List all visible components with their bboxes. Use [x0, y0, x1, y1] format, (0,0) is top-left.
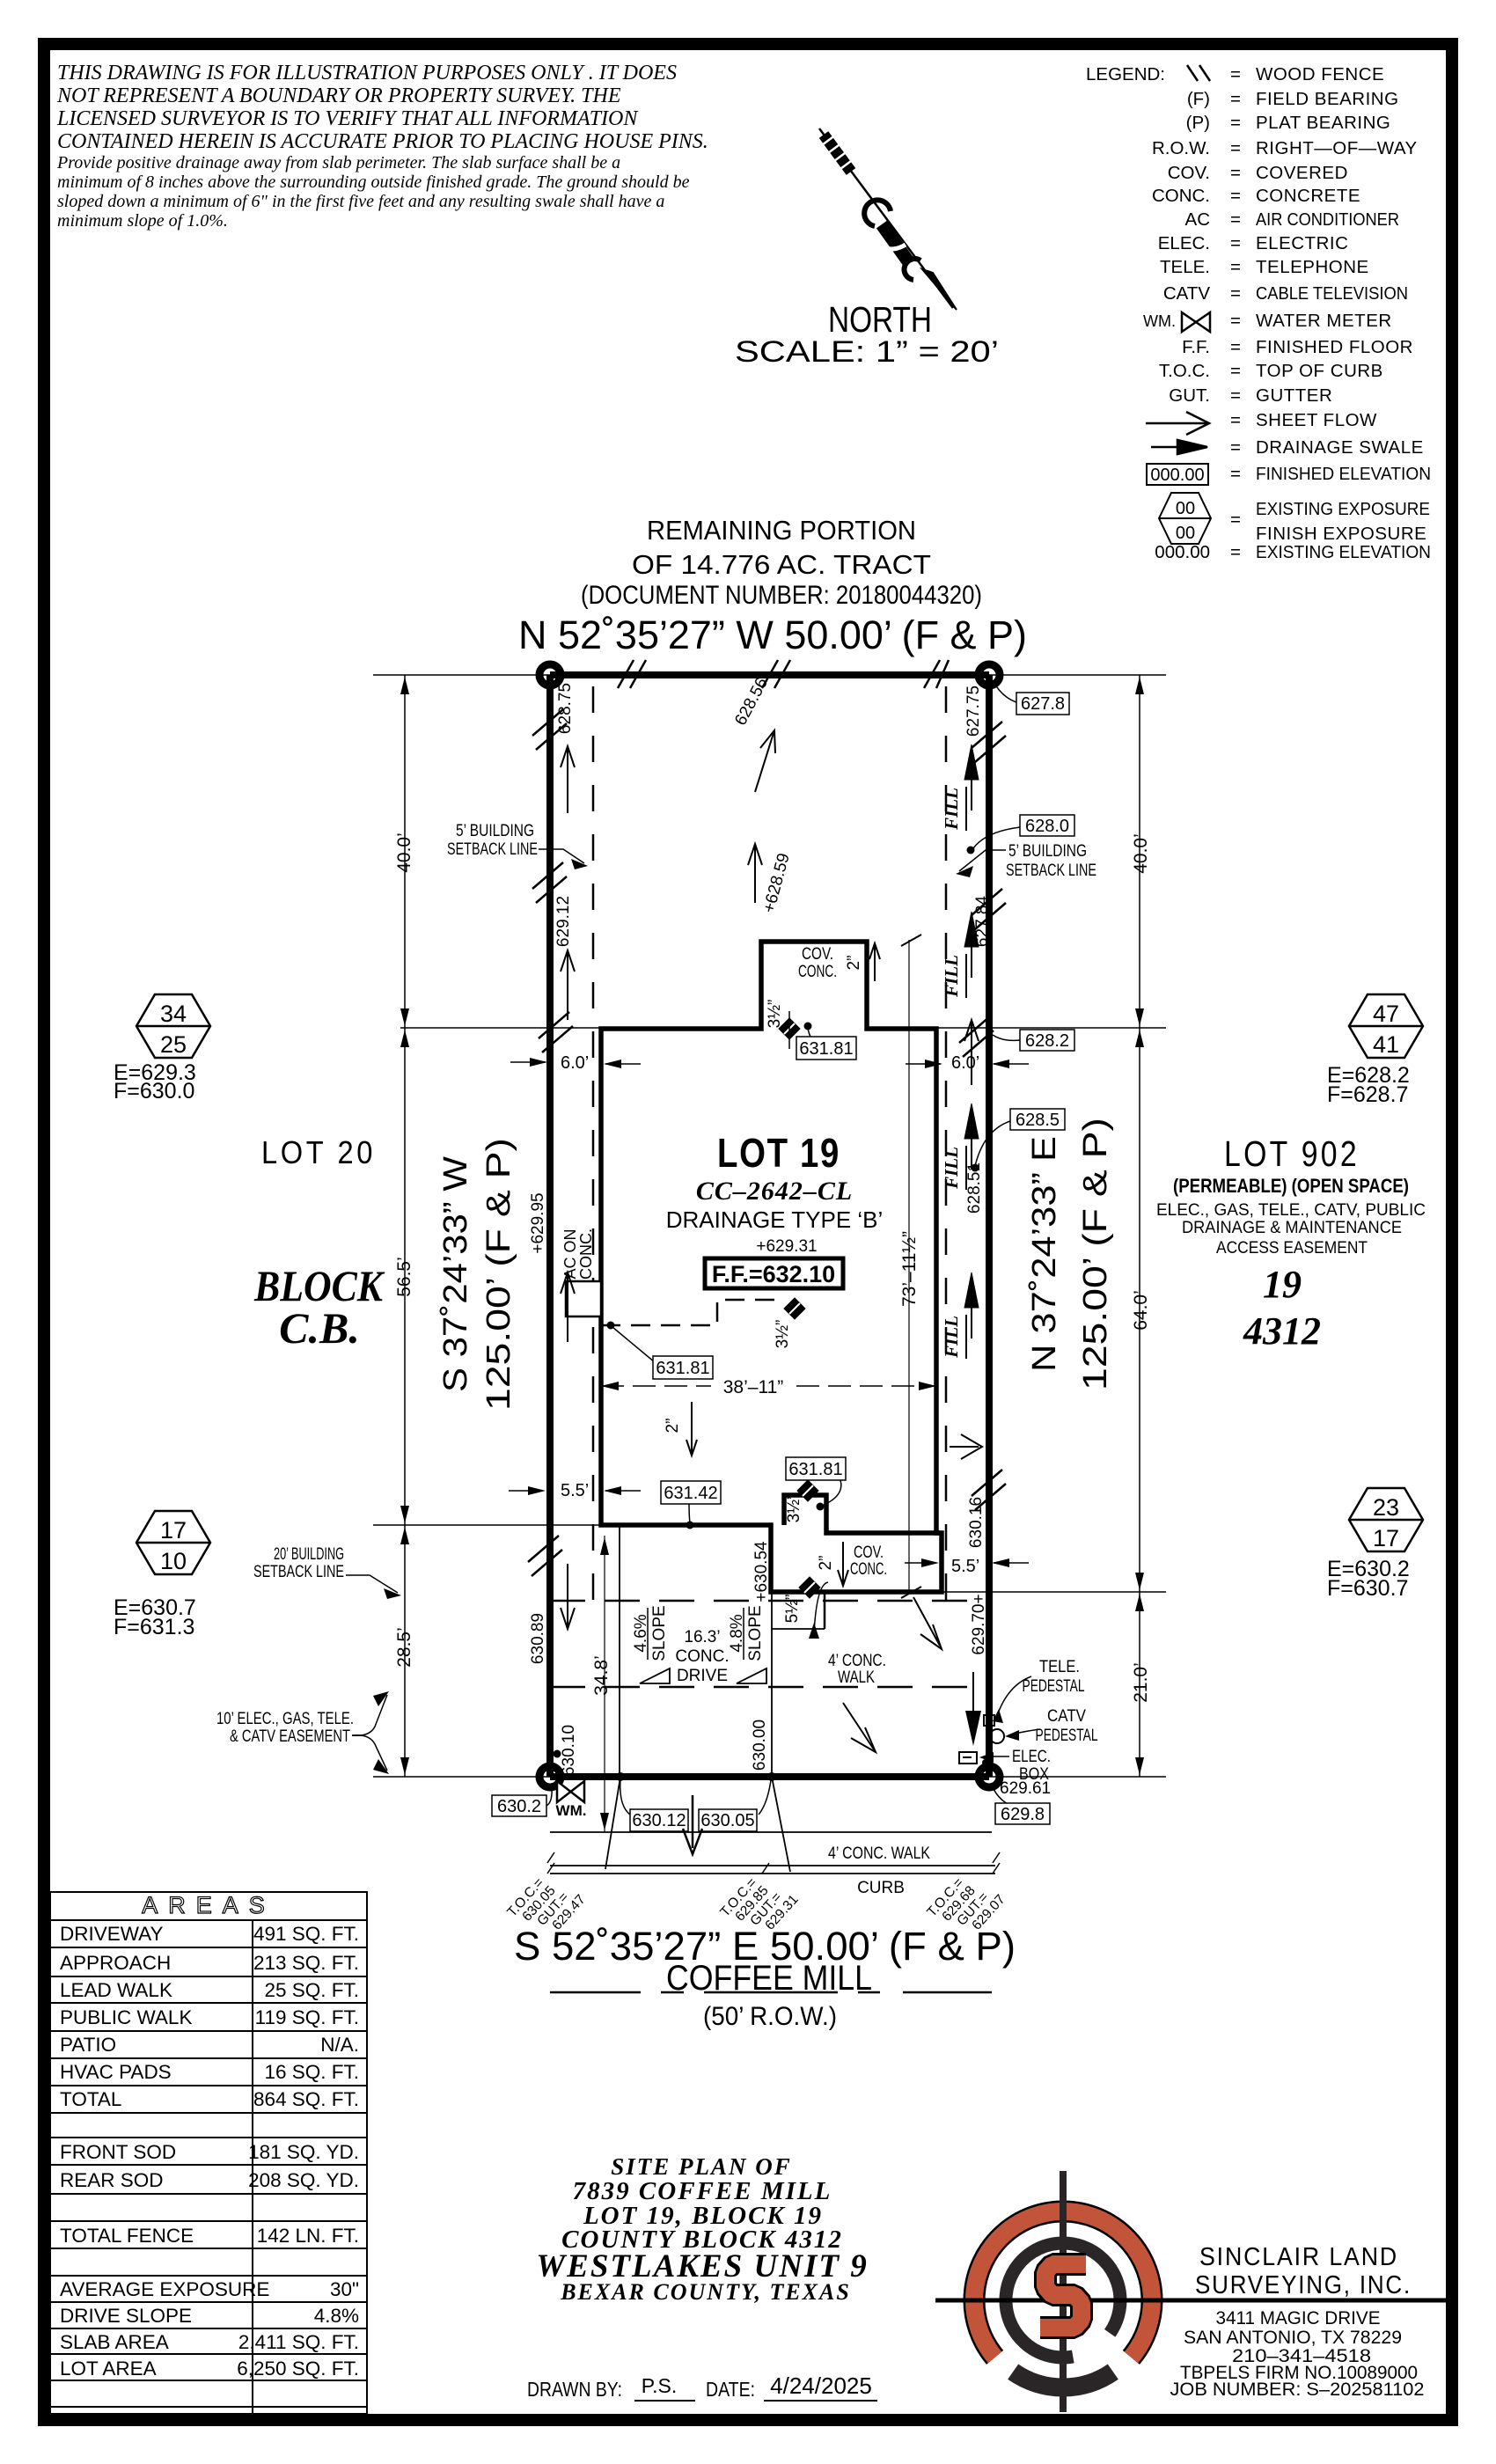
svg-text:LEAD WALK: LEAD WALK	[60, 1979, 172, 2001]
svg-text:& CATV EASEMENT: & CATV EASEMENT	[230, 1727, 350, 1746]
svg-text:TOP OF CURB: TOP OF CURB	[1256, 361, 1383, 381]
svg-text:N 52˚35’27” W 50.00’ (F &: N 52˚35’27” W 50.00’ (F & P)	[518, 612, 1027, 657]
svg-text:28.5’: 28.5’	[394, 1627, 414, 1668]
svg-text:34.8’: 34.8’	[591, 1655, 612, 1696]
svg-text:LOT 19: LOT 19	[717, 1130, 840, 1176]
svg-text:5½”: 5½”	[783, 1595, 802, 1624]
svg-text:000.00: 000.00	[1150, 466, 1204, 485]
svg-text:627.75: 627.75	[964, 686, 983, 737]
svg-text:40.0’: 40.0’	[1131, 833, 1151, 874]
svg-text:CONC.: CONC.	[1152, 186, 1210, 206]
svg-text:minimum slope of 1.0%.: minimum slope of 1.0%.	[57, 211, 228, 231]
svg-text:ELECTRIC: ELECTRIC	[1256, 233, 1348, 253]
svg-text:JOB NUMBER: S–202581102: JOB NUMBER: S–202581102	[1170, 2380, 1425, 2400]
svg-text:=: =	[1230, 233, 1241, 253]
svg-text:4’ CONC.: 4’ CONC.	[828, 1652, 886, 1670]
svg-text:2”: 2”	[845, 956, 863, 971]
svg-text:LOT 20: LOT 20	[261, 1134, 376, 1170]
svg-text:ELEC.: ELEC.	[1158, 233, 1210, 253]
svg-text:40.0’: 40.0’	[394, 832, 414, 873]
svg-text:CONC.: CONC.	[850, 1560, 887, 1579]
svg-text:CONTAINED HEREIN IS ACCURATE P: CONTAINED HEREIN IS ACCURATE PRIOR TO PL…	[57, 130, 708, 153]
svg-text:CABLE TELEVISION: CABLE TELEVISION	[1256, 283, 1408, 304]
svg-text:17: 17	[160, 1517, 187, 1544]
svg-text:=: =	[1230, 542, 1241, 562]
svg-text:SAN ANTONIO, TX 78229: SAN ANTONIO, TX 78229	[1184, 2328, 1402, 2348]
svg-text:630.12: 630.12	[632, 1811, 686, 1830]
svg-text:4312: 4312	[1243, 1309, 1321, 1353]
svg-text:125.00’ (F & P): 125.00’ (F & P)	[480, 1138, 517, 1411]
svg-text:17: 17	[1373, 1525, 1399, 1551]
svg-text:(DOCUMENT NUMBER: 2018004432: (DOCUMENT NUMBER: 20180044320)	[581, 581, 982, 610]
svg-text:COV.: COV.	[1168, 163, 1210, 183]
svg-text:4.8%: 4.8%	[314, 2305, 359, 2327]
svg-text:EXISTING ELEVATION: EXISTING ELEVATION	[1256, 542, 1431, 562]
svg-text:DRIVE: DRIVE	[677, 1667, 728, 1685]
svg-text:628.2: 628.2	[1025, 1031, 1069, 1051]
svg-text:APPROACH: APPROACH	[60, 1952, 171, 1974]
svg-text:(P): (P)	[1186, 113, 1210, 133]
svg-text:=: =	[1230, 283, 1241, 304]
svg-text:25: 25	[160, 1031, 187, 1058]
svg-text:142 LN. FT.: 142 LN. FT.	[257, 2225, 359, 2247]
svg-text:F=631.3: F=631.3	[114, 1615, 194, 1639]
svg-text:6.0’: 6.0’	[951, 1053, 979, 1073]
svg-text:=: =	[1230, 209, 1241, 230]
svg-text:FINISH EXPOSURE: FINISH EXPOSURE	[1256, 524, 1426, 544]
svg-text:F=630.0: F=630.0	[114, 1079, 194, 1104]
svg-text:5.5’: 5.5’	[951, 1557, 979, 1576]
svg-text:630.2: 630.2	[497, 1797, 541, 1816]
svg-text:864 SQ. FT.: 864 SQ. FT.	[253, 2088, 359, 2110]
svg-text:NOT REPRESENT A BOUNDARY OR PR: NOT REPRESENT A BOUNDARY OR PROPERTY SUR…	[56, 84, 621, 107]
svg-text:ACCESS EASEMENT: ACCESS EASEMENT	[1216, 1239, 1368, 1258]
svg-text:CC–2642–CL: CC–2642–CL	[696, 1177, 853, 1206]
svg-text:TOTAL: TOTAL	[60, 2088, 121, 2110]
svg-text:SLOPE: SLOPE	[650, 1605, 669, 1661]
svg-text:PUBLIC WALK: PUBLIC WALK	[60, 2006, 192, 2028]
svg-text:631.81: 631.81	[788, 1460, 842, 1479]
svg-text:TOTAL FENCE: TOTAL FENCE	[60, 2225, 194, 2247]
svg-text:T.O.C.: T.O.C.	[1159, 361, 1210, 381]
svg-text:F=630.7: F=630.7	[1327, 1576, 1408, 1601]
svg-text:FINISHED ELEVATION: FINISHED ELEVATION	[1256, 464, 1431, 484]
svg-text:COV.: COV.	[854, 1544, 884, 1562]
svg-text:FILL: FILL	[941, 1147, 962, 1190]
svg-text:=: =	[1230, 186, 1241, 206]
svg-text:REMAINING PORTION: REMAINING PORTION	[647, 515, 916, 546]
svg-text:+630.54: +630.54	[752, 1541, 771, 1602]
svg-text:FRONT SOD: FRONT SOD	[60, 2141, 176, 2163]
svg-text:CONC.: CONC.	[798, 963, 837, 981]
svg-text:213 SQ. FT.: 213 SQ. FT.	[253, 1952, 359, 1974]
svg-text:=: =	[1230, 361, 1241, 381]
svg-text:AREAS: AREAS	[142, 1892, 275, 1918]
svg-text:00: 00	[1176, 499, 1195, 518]
svg-text:GUTTER: GUTTER	[1256, 385, 1332, 406]
svg-text:6.0’: 6.0’	[561, 1053, 589, 1073]
svg-text:AC: AC	[1185, 209, 1211, 230]
svg-text:19: 19	[1263, 1263, 1302, 1306]
svg-text:+629.95: +629.95	[529, 1192, 547, 1253]
svg-text:THIS DRAWING IS FOR ILLUSTRATI: THIS DRAWING IS FOR ILLUSTRATION PURPOSE…	[57, 62, 677, 84]
svg-text:23: 23	[1373, 1494, 1399, 1521]
svg-text:631.81: 631.81	[799, 1039, 853, 1059]
svg-text:630.89: 630.89	[529, 1613, 547, 1664]
svg-text:4’ CONC. WALK: 4’ CONC. WALK	[828, 1844, 930, 1863]
svg-text:629.70+: 629.70+	[970, 1594, 988, 1654]
svg-text:64.0’: 64.0’	[1131, 1290, 1151, 1331]
svg-text:=: =	[1230, 64, 1241, 84]
svg-text:10: 10	[160, 1548, 187, 1574]
svg-text:PEDESTAL: PEDESTAL	[1036, 1727, 1098, 1745]
svg-text:WALK: WALK	[838, 1668, 875, 1687]
svg-text:FILL: FILL	[941, 955, 962, 998]
svg-text:LOT 902: LOT 902	[1224, 1133, 1360, 1174]
svg-text:TELE.: TELE.	[1039, 1658, 1080, 1676]
svg-text:LEGEND:: LEGEND:	[1086, 64, 1165, 84]
svg-text:WOOD FENCE: WOOD FENCE	[1256, 64, 1384, 84]
svg-text:R.O.W.: R.O.W.	[1152, 138, 1210, 158]
svg-text:=: =	[1230, 385, 1241, 406]
svg-text:(F): (F)	[1187, 89, 1210, 109]
svg-text:4/24/2025: 4/24/2025	[770, 2372, 872, 2399]
svg-text:ELEC.: ELEC.	[1012, 1748, 1051, 1766]
svg-text:F.F.: F.F.	[1182, 337, 1210, 357]
svg-text:181 SQ. YD.: 181 SQ. YD.	[248, 2141, 359, 2163]
svg-text:2,411 SQ. FT.: 2,411 SQ. FT.	[238, 2331, 359, 2353]
svg-text:000.00: 000.00	[1155, 542, 1210, 562]
svg-text:119 SQ. FT.: 119 SQ. FT.	[255, 2006, 359, 2028]
svg-text:2”: 2”	[817, 1556, 835, 1571]
svg-text:DRAWN BY:: DRAWN BY:	[527, 2378, 622, 2401]
svg-text:SURVEYING, INC.: SURVEYING, INC.	[1195, 2271, 1412, 2299]
svg-text:56.5’: 56.5’	[394, 1257, 414, 1297]
svg-text:P.S.: P.S.	[642, 2374, 678, 2397]
svg-text:3½”: 3½”	[766, 1000, 784, 1029]
svg-text:5.5’: 5.5’	[561, 1481, 589, 1500]
svg-text:EXISTING EXPOSURE: EXISTING EXPOSURE	[1256, 499, 1430, 519]
svg-text:=: =	[1230, 163, 1241, 183]
svg-text:CATV: CATV	[1047, 1707, 1086, 1726]
svg-text:SETBACK LINE: SETBACK LINE	[1006, 862, 1096, 880]
svg-text:SLOPE: SLOPE	[746, 1605, 765, 1661]
svg-text:21.0’: 21.0’	[1131, 1662, 1151, 1703]
svg-text:DRAINAGE TYPE ‘B’: DRAINAGE TYPE ‘B’	[666, 1206, 884, 1233]
svg-text:minimum of 8 inches above the: minimum of 8 inches above the surroundin…	[57, 172, 690, 192]
svg-text:FILL: FILL	[941, 788, 962, 831]
svg-text:=: =	[1230, 257, 1241, 277]
svg-text:WM.: WM.	[1143, 312, 1176, 330]
svg-text:LOT AREA: LOT AREA	[60, 2358, 157, 2380]
svg-text:(50’ R.O.W.): (50’ R.O.W.)	[703, 2002, 837, 2031]
svg-text:627.8: 627.8	[1021, 694, 1065, 714]
svg-text:630.10: 630.10	[560, 1725, 578, 1776]
svg-text:S 37˚24’33” W: S 37˚24’33” W	[437, 1156, 474, 1392]
svg-text:=: =	[1230, 311, 1241, 331]
svg-text:N 37˚24’33” E: N 37˚24’33” E	[1026, 1136, 1063, 1372]
svg-text:628.75: 628.75	[556, 683, 575, 734]
svg-text:HVAC PADS: HVAC PADS	[60, 2061, 172, 2083]
svg-text:630.00: 630.00	[751, 1720, 769, 1771]
svg-text:LICENSED SURVEYOR IS TO VERIFY: LICENSED SURVEYOR IS TO VERIFY THAT ALL …	[56, 107, 639, 130]
svg-text:=: =	[1230, 337, 1241, 357]
svg-text:628.51: 628.51	[965, 1162, 984, 1214]
svg-text:=: =	[1230, 138, 1241, 158]
svg-text:OF 14.776 AC. TRACT: OF 14.776 AC. TRACT	[632, 549, 931, 580]
svg-text:NORTH: NORTH	[828, 299, 932, 340]
svg-text:AIR CONDITIONER: AIR CONDITIONER	[1256, 209, 1399, 230]
svg-text:628.5: 628.5	[1016, 1111, 1060, 1130]
svg-text:=: =	[1230, 510, 1241, 530]
svg-text:BEXAR COUNTY, TEXAS: BEXAR COUNTY, TEXAS	[560, 2279, 851, 2305]
svg-text:2”: 2”	[664, 1419, 682, 1434]
svg-text:SINCLAIR LAND: SINCLAIR LAND	[1199, 2243, 1398, 2271]
svg-text:=: =	[1230, 113, 1241, 133]
svg-text:DRIVE SLOPE: DRIVE SLOPE	[60, 2305, 192, 2327]
svg-text:16 SQ. FT.: 16 SQ. FT.	[264, 2061, 359, 2083]
svg-text:TELE.: TELE.	[1160, 257, 1210, 277]
svg-text:AC ON: AC ON	[561, 1228, 579, 1279]
svg-text:DRAINAGE SWALE: DRAINAGE SWALE	[1256, 437, 1424, 458]
svg-text:TELEPHONE: TELEPHONE	[1256, 257, 1369, 277]
svg-text:47: 47	[1373, 1001, 1399, 1027]
svg-text:10’ ELEC., GAS, TELE.: 10’ ELEC., GAS, TELE.	[216, 1710, 354, 1728]
svg-text:COV.: COV.	[802, 945, 833, 964]
svg-text:3½”: 3½”	[774, 1320, 792, 1349]
svg-text:+629.31: +629.31	[756, 1237, 817, 1256]
svg-text:CATV: CATV	[1163, 283, 1210, 304]
svg-text:30": 30"	[330, 2278, 359, 2300]
svg-text:REAR SOD: REAR SOD	[60, 2169, 164, 2191]
svg-text:6,250 SQ. FT.: 6,250 SQ. FT.	[237, 2358, 359, 2380]
svg-text:sloped down a minimum of 6" in: sloped down a minimum of 6" in the first…	[57, 192, 664, 211]
svg-text:SLAB AREA: SLAB AREA	[60, 2331, 169, 2353]
svg-text:PEDESTAL: PEDESTAL	[1023, 1677, 1085, 1696]
svg-text:5’ BUILDING: 5’ BUILDING	[1008, 842, 1087, 861]
svg-text:FIELD BEARING: FIELD BEARING	[1256, 89, 1399, 109]
svg-text:SETBACK LINE: SETBACK LINE	[447, 840, 538, 859]
svg-text:20’ BUILDING: 20’ BUILDING	[274, 1545, 344, 1564]
svg-text:=: =	[1230, 410, 1241, 430]
svg-text:=: =	[1230, 437, 1241, 458]
svg-text:3½”: 3½”	[785, 1494, 803, 1523]
svg-text:Provide positive drainage away: Provide positive drainage away from slab…	[56, 153, 620, 172]
svg-text:+628.59: +628.59	[760, 851, 794, 914]
svg-text:73’–11½”: 73’–11½”	[899, 1231, 920, 1307]
svg-text:628.56: 628.56	[731, 675, 772, 729]
svg-text:RIGHT—OF—WAY: RIGHT—OF—WAY	[1256, 138, 1418, 158]
svg-text:=: =	[1230, 89, 1241, 109]
svg-text:FINISHED FLOOR: FINISHED FLOOR	[1256, 337, 1413, 357]
svg-text:(PERMEABLE) (OPEN SPACE): (PERMEABLE) (OPEN SPACE)	[1173, 1175, 1409, 1197]
svg-text:DATE:: DATE:	[706, 2378, 755, 2401]
svg-text:628.0: 628.0	[1025, 817, 1069, 836]
svg-text:CONC.: CONC.	[675, 1647, 729, 1666]
svg-text:CONCRETE: CONCRETE	[1256, 186, 1360, 206]
svg-text:SITE PLAN OF: SITE PLAN OF	[611, 2153, 792, 2180]
svg-text:00: 00	[1176, 524, 1195, 543]
svg-text:630.16: 630.16	[967, 1497, 986, 1548]
svg-text:AVERAGE EXPOSURE: AVERAGE EXPOSURE	[60, 2278, 269, 2300]
svg-text:38’–11”: 38’–11”	[723, 1377, 784, 1397]
svg-text:629.8: 629.8	[1001, 1805, 1045, 1824]
svg-text:125.00’ (F & P): 125.00’ (F & P)	[1077, 1118, 1114, 1390]
svg-text:16.3’: 16.3’	[684, 1628, 720, 1646]
svg-text:BOX: BOX	[1019, 1765, 1049, 1784]
svg-text:491 SQ. FT.: 491 SQ. FT.	[253, 1923, 359, 1945]
svg-text:3411 MAGIC DRIVE: 3411 MAGIC DRIVE	[1216, 2308, 1381, 2328]
svg-text:41: 41	[1373, 1031, 1399, 1058]
svg-text:ELEC., GAS, TELE., CATV, P: ELEC., GAS, TELE., CATV, PUBLIC	[1156, 1201, 1426, 1220]
svg-text:CONC.: CONC.	[577, 1228, 595, 1280]
svg-text:=: =	[1230, 464, 1241, 484]
svg-text:CURB: CURB	[857, 1879, 905, 1897]
svg-text:34: 34	[160, 1001, 187, 1027]
svg-text:5’ BUILDING: 5’ BUILDING	[456, 822, 534, 840]
svg-text:SETBACK LINE: SETBACK LINE	[253, 1563, 344, 1581]
svg-text:F.F.=632.10: F.F.=632.10	[712, 1261, 835, 1287]
svg-text:25 SQ. FT.: 25 SQ. FT.	[264, 1979, 359, 2001]
svg-text:SCALE: 1” = 20’: SCALE: 1” = 20’	[735, 335, 999, 369]
svg-text:COVERED: COVERED	[1256, 163, 1348, 183]
svg-text:208 SQ. YD.: 208 SQ. YD.	[248, 2169, 359, 2191]
svg-text:629.12: 629.12	[554, 896, 573, 947]
svg-text:SHEET FLOW: SHEET FLOW	[1256, 410, 1377, 430]
svg-text:FILL: FILL	[941, 1316, 962, 1359]
svg-text:C.B.: C.B.	[279, 1303, 360, 1353]
svg-text:631.81: 631.81	[656, 1359, 709, 1378]
svg-text:630.05: 630.05	[700, 1811, 754, 1830]
svg-text:GUT.: GUT.	[1169, 385, 1210, 406]
svg-text:F=628.7: F=628.7	[1327, 1082, 1408, 1107]
svg-text:PLAT BEARING: PLAT BEARING	[1256, 113, 1390, 133]
svg-text:631.42: 631.42	[664, 1484, 717, 1503]
svg-text:N/A.: N/A.	[320, 2034, 359, 2056]
svg-text:DRIVEWAY: DRIVEWAY	[60, 1923, 164, 1945]
svg-text:PATIO: PATIO	[60, 2034, 116, 2056]
svg-text:DRAINAGE & MAINTENANCE: DRAINAGE & MAINTENANCE	[1182, 1219, 1402, 1237]
svg-text:WM.: WM.	[556, 1802, 587, 1819]
svg-text:WATER METER: WATER METER	[1256, 311, 1392, 331]
